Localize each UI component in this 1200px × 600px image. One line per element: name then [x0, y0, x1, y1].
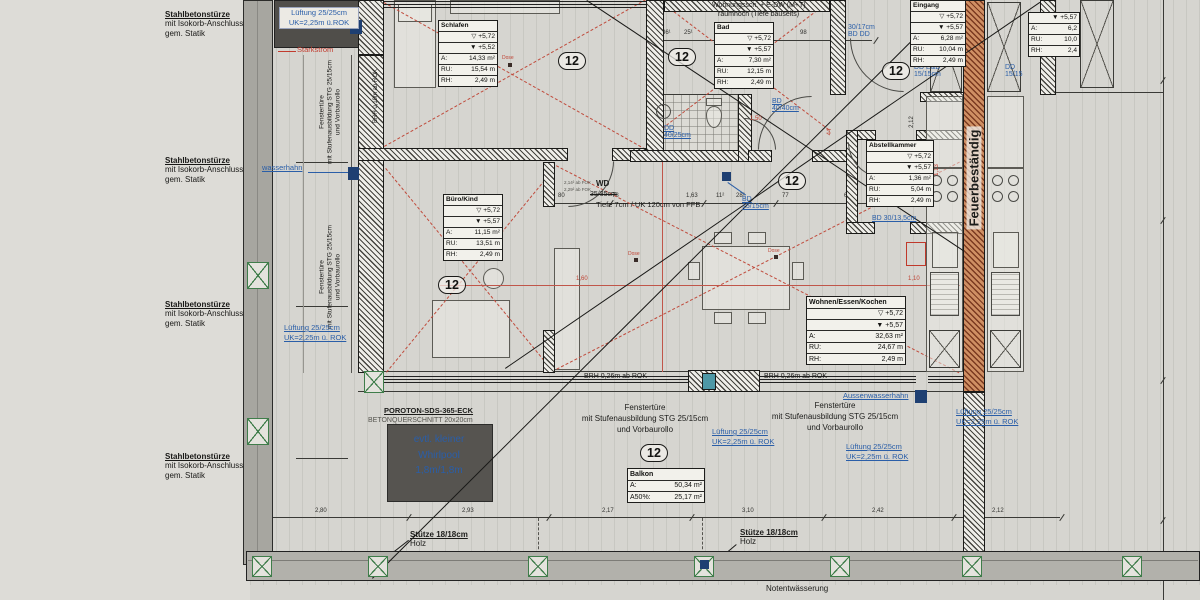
duct-label-bd30135: BD 30/13,5cm — [872, 215, 916, 222]
balcony-door-note-2: Fenstertüre mit Stufenausbildung STG 25/… — [760, 401, 910, 433]
fok-note: 2,14² ab FOK — [564, 180, 591, 185]
area-value: 6,2 — [1068, 26, 1077, 33]
duct-label-bd1515: BD 15/15cm — [742, 196, 769, 210]
sideboard — [554, 248, 580, 370]
room-info-balkon: Balkon A:50,34 m² A50%:25,17 m² — [627, 468, 705, 503]
room-name: Büro/Kind — [444, 195, 502, 205]
wardrobe — [1080, 0, 1114, 88]
ru-label: RU: — [869, 187, 880, 194]
wall-storage-bottom — [846, 222, 875, 234]
rh-value: 2,49 m — [475, 78, 495, 85]
red-dim: 44 — [827, 129, 833, 136]
room-info-buero: Büro/Kind ▽ +5,72 ▼ +5,57 A:11,15 m² RU:… — [443, 194, 503, 261]
shaft-outline-red — [906, 242, 926, 266]
unit-badge: 12 — [438, 276, 466, 294]
starkstrom-label: Starkstrom — [297, 45, 333, 54]
area-value: 7,30 m² — [749, 58, 771, 65]
note-line: mit Stufenausbildung STG 25/15cm — [760, 412, 910, 423]
burner-icon — [947, 191, 958, 202]
post-marker — [368, 556, 388, 577]
vent-label-line: UK=2,25m ü.ROK — [280, 18, 358, 28]
chair — [714, 312, 732, 324]
note-line: und Vorbaurollo — [335, 60, 343, 164]
room-info-bad: Bad ▽ +5,72 ▼ +5,57 A:7,30 m² RU:12,15 m… — [714, 22, 774, 89]
area-value: 6,28 m² — [941, 36, 963, 43]
vent-line: UK=2,25m ü. ROK — [956, 417, 1018, 427]
brh-026-label: BRH 0,26m ab ROK — [764, 373, 827, 380]
wd-note: Tiefe 7cm / UK 120cm von FFB — [596, 200, 700, 209]
level-raw: ▽ +5,72 — [476, 208, 500, 215]
vent-line: UK=2,25m ü. ROK — [284, 333, 346, 343]
note-line: Fenstertüre — [319, 60, 327, 164]
duct-line: DD — [1005, 64, 1023, 71]
level-raw: ▽ +5,72 — [907, 154, 931, 161]
level-raw: ▽ +5,72 — [471, 34, 495, 41]
post-anchor-icon — [700, 560, 709, 569]
brh-026-label: BRH 0,26m ab ROK — [584, 373, 647, 380]
chair — [748, 232, 766, 244]
lintel-note-4: Stahlbetonstürze mit Isokorb-Anschluss g… — [165, 452, 305, 480]
lintel-note-title: Stahlbetonstürze — [165, 452, 305, 461]
note-line: und Vorbaurollo — [335, 225, 343, 329]
note-line: mit Stufenausbildung STG 25/15cm — [327, 225, 335, 329]
level-fin: ▼ +5,57 — [906, 165, 931, 172]
socket-label: Dose — [768, 248, 780, 254]
lintel-note-line: gem. Statik — [165, 29, 305, 38]
vent-label-balcony-1: Lüftung 25/25cm UK=2,25m ü. ROK — [712, 427, 774, 447]
unit-badge: 12 — [882, 62, 910, 80]
wall-office-living — [543, 162, 555, 207]
wall-bath-entry — [830, 0, 846, 95]
red-dim: 1,13 — [934, 164, 940, 176]
burner-icon — [1008, 191, 1019, 202]
room-info-schlafen: Schlafen ▽ +5,72 ▼ +5,52 A:14,33 m² RU:1… — [438, 20, 498, 87]
wc-tank — [706, 98, 722, 106]
vent-line: Lüftung 25/25cm — [712, 427, 774, 437]
lintel-note-line: gem. Statik — [165, 471, 305, 480]
note-line: und Vorbaurollo — [560, 425, 730, 436]
post-note-2: Stütze 18/18cm Holz — [740, 528, 798, 546]
area-label: A: — [441, 56, 447, 63]
vent-line: Lüftung 25/25cm — [956, 407, 1018, 417]
post-note-line: Holz — [410, 539, 468, 548]
chair — [792, 262, 804, 280]
wall-bedroom-bottom — [358, 148, 568, 161]
level-raw: ▽ +5,72 — [878, 310, 903, 317]
ru-value: 12,15 m — [747, 69, 771, 76]
post-marker — [528, 556, 548, 577]
note-line: und Vorbaurollo — [760, 423, 910, 434]
kitchen-counter — [987, 96, 1024, 168]
duct-line: BD DD — [848, 31, 875, 38]
vent-line: UK=2,25m ü. ROK — [712, 437, 774, 447]
burner-icon — [947, 175, 958, 186]
cabinet — [990, 330, 1021, 368]
chair — [748, 312, 766, 324]
area-value: 50,34 m² — [674, 482, 702, 489]
area-value: 1,36 m² — [909, 176, 931, 183]
ru-value: 10,0 — [1064, 37, 1077, 44]
chair — [688, 262, 700, 280]
unit-badge: 12 — [668, 48, 696, 66]
duct-line: DD — [664, 125, 691, 132]
window-door-note-top: Fenstertüre mit Stufenausbildung STG 25/… — [319, 60, 344, 164]
post-marker — [962, 556, 982, 577]
floor-plan: Stahlbetonstürze mit Isokorb-Anschluss g… — [0, 0, 1200, 600]
room-info-eingang: Eingang ▽ +5,72 ▼ +5,57 A:6,28 m² RU:10,… — [910, 0, 966, 67]
post-axis-line — [538, 518, 539, 554]
post-note-1: Stütze 18/18cm Holz — [410, 530, 468, 548]
vent-line: UK=2,25m ü. ROK — [846, 452, 908, 462]
duct-line: BD — [772, 98, 799, 105]
room-info-abstellkammer: Abstellkammer ▽ +5,72 ▼ +5,57 A:1,36 m² … — [866, 140, 934, 207]
level-fin: ▼ +5,57 — [746, 47, 771, 54]
duct-line: 40/25cm — [664, 132, 691, 139]
duct-label-dd4025: DD 40/25cm — [664, 125, 691, 139]
level-fin: ▼ +5,57 — [1052, 15, 1077, 22]
room-name: Wohnen/Essen/Kochen — [807, 297, 905, 308]
area-value: 32,63 m² — [875, 333, 903, 340]
level-fin: ▼ +5,52 — [470, 45, 495, 52]
rh-label: RH: — [809, 356, 821, 363]
rh-value: 2,49 m — [882, 356, 903, 363]
wd-old-size: 35/35cm — [590, 191, 617, 198]
lintel-note-line: gem. Statik — [165, 175, 305, 184]
vent-label-right: Lüftung 25/25cm UK=2,25m ü. ROK — [956, 407, 1018, 427]
vent-label-topleft: Lüftung 25/25cm UK=2,25m ü.ROK — [279, 7, 359, 29]
post-marker — [1122, 556, 1142, 577]
wall-door-block — [688, 370, 760, 392]
fire-rating-label: Feuerbeständig — [967, 127, 982, 230]
socket-icon — [634, 258, 638, 262]
note-line: Fenstertüre — [760, 401, 910, 412]
duct-marker-icon — [722, 172, 731, 181]
post-note-line: Holz — [740, 537, 798, 546]
poroton-label-2: BETONQUERSCHNITT 20x20cm — [368, 417, 473, 424]
area-value: 11,15 m² — [474, 230, 500, 237]
area50-label: A50%: — [630, 494, 651, 501]
socket-label: Dose — [502, 55, 514, 61]
window-top — [384, 1, 646, 8]
fok-note: 2,29² ab FOK — [564, 187, 591, 192]
rh-label: RH: — [446, 252, 457, 259]
lintel-marker — [247, 262, 269, 289]
duct-label-bd4040: BD 40/40cm — [772, 98, 799, 112]
whirlpool-line: 1,8m/1,8m — [387, 463, 491, 479]
wall — [748, 150, 772, 162]
duct-line: 40/40cm — [772, 105, 799, 112]
duct-line: 30/17cm — [848, 24, 875, 31]
red-dim: 1,60 — [576, 276, 588, 282]
lintel-note-line: mit Isokorb-Anschluss — [165, 309, 305, 318]
vent-line: Lüftung 25/25cm — [846, 442, 908, 452]
ru-value: 5,04 m — [911, 187, 931, 194]
unit-badge: 12 — [778, 172, 806, 190]
socket-icon — [774, 255, 778, 259]
room-name: Eingang — [911, 1, 965, 11]
burner-icon — [1008, 175, 1019, 186]
rh-label: RH: — [1031, 48, 1042, 55]
window-south — [928, 376, 963, 383]
ru-value: 15,54 m — [471, 67, 495, 74]
wasserhahn-label: wasserhahn — [262, 163, 302, 172]
ru-value: 10,04 m — [939, 47, 963, 54]
faucet-marker-icon — [915, 390, 927, 403]
cabinet — [929, 330, 960, 368]
balcony-slab — [246, 551, 1200, 581]
wd-label: WD — [596, 179, 609, 188]
area-label: A: — [913, 36, 919, 43]
outdoor-faucet-label: Aussenwasserhahn — [843, 391, 908, 400]
wall-bedroom-bath — [646, 0, 664, 160]
closet-note: raumhoch (Tiefe bauseits) — [718, 11, 799, 18]
measure-line-red — [440, 285, 960, 286]
vent-label-line: Lüftung 25/25cm — [280, 8, 358, 18]
burner-icon — [992, 191, 1003, 202]
area-label: A: — [717, 58, 723, 65]
level-raw: ▽ +5,72 — [939, 14, 963, 21]
rh-label: RH: — [869, 198, 880, 205]
room-info-neighbor: ▼ +5,57 A:6,2 RU:10,0 RH:2,4 — [1028, 12, 1080, 57]
note-line: mit Stufenausbildung STG 25/15cm — [327, 60, 335, 164]
room-name: Balkon — [628, 469, 704, 480]
area-label: A: — [1031, 26, 1037, 33]
wall-bedroom-left — [358, 55, 384, 373]
post-axis-line — [702, 518, 703, 554]
wall-wc-bottom — [630, 150, 748, 162]
lintel-marker — [247, 418, 269, 445]
duct-line: 15/15cm — [914, 71, 941, 78]
rh-label: RH: — [441, 78, 452, 85]
whirlpool-line: Whirlpool — [387, 448, 491, 464]
area-label: A: — [446, 230, 452, 237]
vent-line: Lüftung 25/25cm — [284, 323, 346, 333]
socket-icon — [508, 63, 512, 67]
rh-value: 2,49 m — [480, 252, 500, 259]
faucet-marker-icon — [348, 167, 359, 180]
window-door-note-bottom: Fenstertüre mit Stufenausbildung STG 25/… — [319, 225, 344, 329]
duct-line: 15/15cm — [742, 203, 769, 210]
vent-label-left: Lüftung 25/25cm UK=2,25m ü. ROK — [284, 323, 346, 343]
desk — [432, 300, 510, 358]
lintel-note-title: Stahlbetonstürze — [165, 300, 305, 309]
drainage-label: Notentwässerung — [766, 584, 828, 593]
room-name: Schlafen — [439, 21, 497, 31]
oven — [993, 232, 1019, 268]
rh-value: 2,49 m — [751, 80, 771, 87]
unit-badge: 12 — [558, 52, 586, 70]
room-name: Abstellkammer — [867, 141, 933, 151]
door-marker — [702, 373, 716, 390]
post-note-title: Stütze 18/18cm — [410, 530, 468, 539]
post-note-title: Stütze 18/18cm — [740, 528, 798, 537]
area-label: A: — [630, 482, 637, 489]
ru-label: RU: — [446, 241, 457, 248]
sink — [991, 272, 1020, 316]
rh-label: RH: — [717, 80, 728, 87]
room-info-wohnen: Wohnen/Essen/Kochen ▽ +5,72 ▼ +5,57 A:32… — [806, 296, 906, 365]
ru-value: 24,67 m — [878, 344, 903, 351]
level-fin: ▼ +5,57 — [475, 219, 500, 226]
ru-value: 13,51 m — [476, 241, 500, 248]
whirlpool-line: evtl. kleiner — [387, 432, 491, 448]
wardrobe — [987, 2, 1021, 92]
rh-value: 2,49 m — [911, 198, 931, 205]
poroton-label: POROTON-SDS-365-ECK — [384, 406, 473, 415]
unit-badge: 12 — [640, 444, 668, 462]
area-value: 14,33 m² — [469, 56, 495, 63]
balcony-door-note-1: Fenstertüre mit Stufenausbildung STG 25/… — [560, 403, 730, 435]
ru-label: RU: — [441, 67, 452, 74]
duct-label-ddr: DD 15/15 — [1005, 64, 1023, 78]
area-label: A: — [869, 176, 875, 183]
rh-value: 2,49 m — [943, 58, 963, 65]
rh-value: 2,4 — [1068, 48, 1077, 55]
red-dim: 1,50 — [750, 116, 762, 122]
shower-head-icon — [656, 104, 671, 119]
burner-icon — [992, 175, 1003, 186]
post-marker — [252, 556, 272, 577]
rh-label: RH: — [913, 58, 924, 65]
duct-line: 15/15 — [1005, 71, 1023, 78]
ru-label: RU: — [717, 69, 728, 76]
level-fin: ▼ +5,57 — [938, 25, 963, 32]
closet-note: Wohnungssch. + E-DW (M+T) — [712, 2, 806, 9]
ru-label: RU: — [1031, 37, 1042, 44]
socket-label: Dose — [628, 251, 640, 257]
brh-010-label: BRH 0,10m ab ROK — [373, 69, 379, 123]
note-line: mit Stufenausbildung STG 25/15cm — [560, 414, 730, 425]
lintel-note-line: mit Isokorb-Anschluss — [165, 461, 305, 470]
sink — [930, 272, 959, 316]
red-dim: 1,10 — [908, 276, 920, 282]
ru-label: RU: — [913, 47, 924, 54]
lintel-marker — [364, 371, 384, 393]
level-raw: ▽ +5,72 — [747, 36, 771, 43]
area50-value: 25,17 m² — [674, 494, 702, 501]
note-line: Fenstertüre — [560, 403, 730, 414]
duct-label-bd3017: 30/17cm BD DD — [848, 24, 875, 38]
note-line: Fenstertüre — [319, 225, 327, 329]
ru-label: RU: — [809, 344, 821, 351]
post-marker — [830, 556, 850, 577]
area-label: A: — [809, 333, 816, 340]
level-fin: ▼ +5,57 — [876, 322, 903, 329]
whirlpool-note: evtl. kleiner Whirlpool 1,8m/1,8m — [387, 432, 491, 479]
room-name: Bad — [715, 23, 773, 33]
duct-line: BD — [742, 196, 769, 203]
vent-label-balcony-2: Lüftung 25/25cm UK=2,25m ü. ROK — [846, 442, 908, 462]
